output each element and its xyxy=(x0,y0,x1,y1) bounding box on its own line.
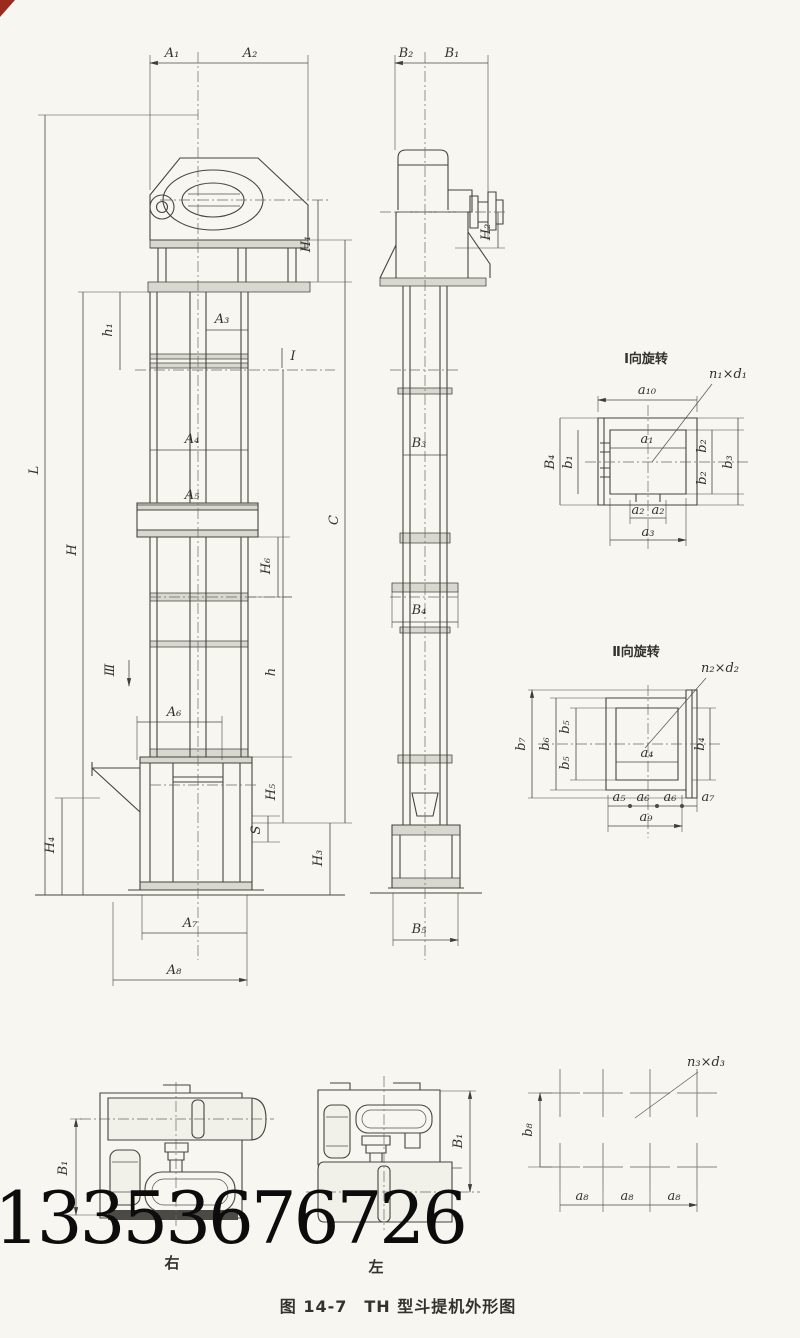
side-flange-bands xyxy=(380,278,486,888)
phone-watermark: 13353676726 xyxy=(0,1176,465,1260)
dim-label-b1: b₁ xyxy=(561,455,576,469)
view-marker-III: Ⅲ xyxy=(103,663,118,677)
chain-dim-dot xyxy=(628,804,632,808)
front-head-support-frame xyxy=(150,248,308,282)
dim-label-B1-right-view: B₁ xyxy=(56,1161,71,1177)
chain-dim-dot xyxy=(655,804,659,808)
figure-caption: 图 14-7 TH 型斗提机外形图 xyxy=(280,1297,517,1316)
side-drive-unit xyxy=(448,190,503,230)
dim-label-H5: H₅ xyxy=(264,783,279,801)
dim-label-H1: H₁ xyxy=(299,236,314,254)
plan-left-belt-housing-inner xyxy=(362,1110,426,1128)
side-motor xyxy=(398,150,448,210)
plan-left-coupling xyxy=(362,1133,420,1162)
dim-label-a6-right: a₆ xyxy=(664,790,677,805)
dim-label-a2-right: a₂ xyxy=(652,503,665,518)
dim-label-h1: h₁ xyxy=(101,323,116,337)
front-casing-walls xyxy=(150,292,248,757)
dim-label-h: h xyxy=(264,668,279,676)
dim-label-b5-bottom: b₅ xyxy=(558,755,573,769)
dim-label-b5-top: b₅ xyxy=(558,719,573,733)
side-centerlines xyxy=(380,52,505,960)
hole-pattern-detail: n₃×d₃ b₈ a₈ a₈ a₈ xyxy=(521,1055,725,1212)
dim-label-B1-left-view: B₁ xyxy=(451,1134,466,1150)
dim-label-a8-2: a₈ xyxy=(621,1189,635,1204)
dim-label-H2: H₂ xyxy=(479,224,494,242)
front-backstop-outer xyxy=(150,195,174,219)
dim-label-B3: B₃ xyxy=(411,436,427,451)
dim-label-H3: H₃ xyxy=(311,850,326,868)
detail-view-II: Ⅱ向旋转 n₂×d₂ b₇ b₆ b₅ b₅ a₄ b₄ a₅ a₆ a₆ a₇… xyxy=(514,644,739,838)
dim-label-a8-3: a₈ xyxy=(668,1189,682,1204)
dim-label-a5: a₅ xyxy=(613,790,627,805)
detail-II-title: Ⅱ向旋转 xyxy=(612,644,660,660)
dim-label-B4: B₄ xyxy=(411,603,427,618)
dim-label-b2-top: b₂ xyxy=(695,439,710,453)
detail-II-holes-label: n₂×d₂ xyxy=(701,661,739,676)
dim-label-a8-1: a₈ xyxy=(576,1189,590,1204)
drawing-page: A₁ A₂ L H h₁ H₄ A₃ Ⅰ A₄ A₅ H₆ C H₁ Ⅲ A₆ … xyxy=(0,0,800,1338)
front-backstop-inner xyxy=(157,202,168,213)
hole-pattern-leader-line xyxy=(635,1072,698,1118)
bucket-elevator-drawing: A₁ A₂ L H h₁ H₄ A₃ Ⅰ A₄ A₅ H₆ C H₁ Ⅲ A₆ … xyxy=(0,0,800,1338)
detail-I-dimension-lines xyxy=(560,400,738,540)
front-view: A₁ A₂ L H h₁ H₄ A₃ Ⅰ A₄ A₅ H₆ C H₁ Ⅲ A₆ … xyxy=(27,46,352,986)
front-extension-lines xyxy=(38,55,352,986)
detail-I-title: Ⅰ向旋转 xyxy=(624,351,668,367)
dim-label-S: S xyxy=(249,825,264,834)
front-boot xyxy=(128,757,264,895)
dim-label-A4: A₄ xyxy=(184,432,200,447)
detail-I-holes-label: n₁×d₁ xyxy=(709,367,747,382)
dim-label-b3: b₃ xyxy=(721,455,736,469)
dim-label-A8: A₈ xyxy=(166,963,182,978)
dim-label-B5: B₅ xyxy=(411,922,428,937)
dim-label-b7: b₇ xyxy=(514,736,529,750)
side-dimension-lines xyxy=(392,63,498,940)
dim-label-B4-flange: B₄ xyxy=(543,455,558,471)
dim-label-B2: B₂ xyxy=(398,46,414,61)
side-view: B₂ B₁ H₂ B₃ B₄ B₅ xyxy=(370,46,505,960)
dim-label-H4: H₄ xyxy=(43,837,58,855)
dim-label-C: C xyxy=(327,515,342,525)
dim-label-b8: b₈ xyxy=(521,1122,536,1136)
view-marker-I: Ⅰ xyxy=(289,349,296,364)
plan-left-motor xyxy=(324,1105,350,1158)
dim-label-a4: a₄ xyxy=(641,746,654,761)
dim-label-a7: a₇ xyxy=(702,790,716,805)
dim-label-a2-left: a₂ xyxy=(632,503,645,518)
front-dimension-lines xyxy=(45,63,345,980)
dim-label-A7: A₇ xyxy=(182,916,198,931)
dim-label-A6: A₆ xyxy=(166,705,182,720)
dim-label-a3: a₃ xyxy=(642,525,655,540)
dim-label-b6: b₆ xyxy=(538,737,553,751)
dim-label-A3: A₃ xyxy=(214,312,230,327)
plan-left-belt-housing-outer xyxy=(356,1105,432,1133)
dim-label-L: L xyxy=(27,466,42,476)
dim-label-a6-left: a₆ xyxy=(637,790,650,805)
dim-label-A5: A₅ xyxy=(184,488,200,503)
dim-label-b4-flange: b₄ xyxy=(693,737,708,751)
hole-cross-marks xyxy=(540,1069,717,1191)
dim-label-A1: A₁ xyxy=(164,46,180,61)
front-inlet-chute xyxy=(92,762,140,812)
plan-right-coupling xyxy=(165,1143,188,1172)
dim-label-H: H xyxy=(65,544,80,557)
dim-label-b2-bottom: b₂ xyxy=(695,471,710,485)
plan-left-caption: 左 xyxy=(367,1258,383,1276)
side-head-housing xyxy=(380,212,490,278)
dim-label-a1: a₁ xyxy=(641,432,654,447)
dim-label-a9: a₉ xyxy=(640,810,654,825)
detail-view-I: Ⅰ向旋转 n₁×d₁ a₁₀ a₁ B₄ b₁ b₂ b₂ b₃ a₂ a₂ a… xyxy=(543,351,748,550)
scan-corner-mark xyxy=(0,0,15,17)
dim-label-a10: a₁₀ xyxy=(638,383,657,398)
chain-dim-dot xyxy=(680,804,684,808)
hole-pattern-holes-label: n₃×d₃ xyxy=(687,1055,725,1070)
dim-label-B1: B₁ xyxy=(444,46,460,61)
dim-label-A2: A₂ xyxy=(242,46,258,61)
dim-label-H6: H₆ xyxy=(259,558,274,576)
